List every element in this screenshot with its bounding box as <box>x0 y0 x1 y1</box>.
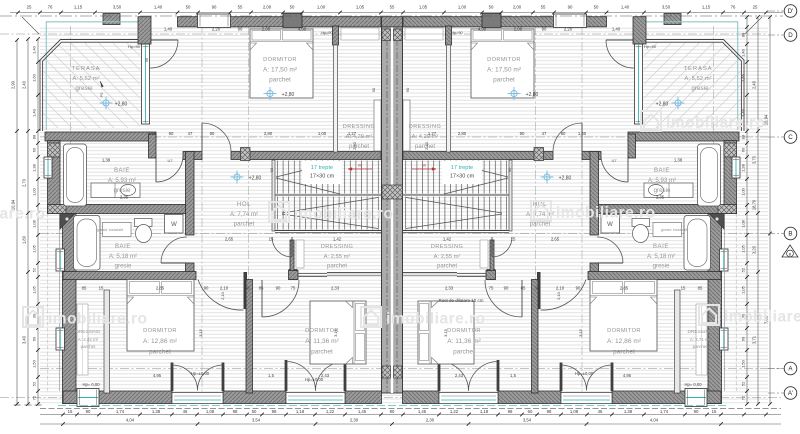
svg-text:C: C <box>788 134 793 141</box>
svg-text:BAIE: BAIE <box>653 244 669 250</box>
svg-text:75: 75 <box>291 286 296 291</box>
svg-text:Hp= 0,00: Hp= 0,00 <box>82 382 100 387</box>
svg-text:D: D <box>788 32 793 39</box>
svg-text:1,00: 1,00 <box>32 187 37 196</box>
svg-text:A: 5,52 m²: A: 5,52 m² <box>684 76 711 82</box>
svg-text:2,33: 2,33 <box>445 286 454 291</box>
svg-text:2,33: 2,33 <box>331 286 340 291</box>
svg-text:60: 60 <box>741 147 746 152</box>
svg-text:2,20: 2,20 <box>212 27 221 32</box>
svg-text:imobiliare.ro: imobiliare.ro <box>48 311 148 328</box>
svg-text:1,05: 1,05 <box>741 285 746 294</box>
svg-text:3,40: 3,40 <box>22 335 27 344</box>
svg-text:A: 17,50 m²: A: 17,50 m² <box>263 67 298 74</box>
svg-text:1,00: 1,00 <box>458 5 467 10</box>
svg-text:90: 90 <box>504 286 509 291</box>
svg-text:1,40: 1,40 <box>612 27 621 32</box>
svg-text:2,80: 2,80 <box>458 131 467 136</box>
svg-text:90: 90 <box>507 167 512 172</box>
svg-text:parchet: parchet <box>453 349 475 356</box>
svg-text:98: 98 <box>272 409 277 414</box>
svg-text:DRESSING: DRESSING <box>75 329 100 335</box>
svg-text:+2,80: +2,80 <box>115 102 128 108</box>
svg-text:2,30: 2,30 <box>350 418 359 423</box>
svg-text:U7: U7 <box>167 158 173 163</box>
svg-text:52: 52 <box>32 267 37 272</box>
svg-text:2,40: 2,40 <box>22 80 27 89</box>
svg-text:50: 50 <box>489 5 494 10</box>
svg-text:2,40: 2,40 <box>352 141 357 150</box>
svg-text:1,42: 1,42 <box>443 237 452 242</box>
svg-text:90: 90 <box>269 167 274 172</box>
svg-text:72: 72 <box>741 395 746 400</box>
svg-text:3,71: 3,71 <box>752 335 757 344</box>
svg-text:2,00: 2,00 <box>263 5 272 10</box>
svg-text:4,90: 4,90 <box>478 27 487 32</box>
svg-text:88: 88 <box>741 134 746 139</box>
svg-text:1,40: 1,40 <box>578 131 587 136</box>
svg-text:B: B <box>788 231 792 238</box>
svg-text:4,04: 4,04 <box>126 418 135 423</box>
svg-text:3,15: 3,15 <box>333 328 338 337</box>
svg-text:Hp=90: Hp=90 <box>321 31 332 35</box>
svg-text:90: 90 <box>405 87 410 92</box>
svg-text:15: 15 <box>269 237 274 242</box>
svg-text:1,18: 1,18 <box>296 409 305 414</box>
svg-text:3,54: 3,54 <box>252 418 261 423</box>
svg-text:30: 30 <box>245 286 250 291</box>
svg-text:3,15: 3,15 <box>578 328 583 337</box>
svg-text:3,15: 3,15 <box>198 328 203 337</box>
svg-text:1,27: 1,27 <box>428 131 437 136</box>
svg-text:Hp=±0,00: Hp=±0,00 <box>191 371 210 376</box>
svg-text:1,5: 1,5 <box>268 373 275 378</box>
svg-text:A: 5,93 m²: A: 5,93 m² <box>108 177 136 184</box>
svg-text:4,95: 4,95 <box>623 373 632 378</box>
svg-text:imobiliare.ro: imobiliare.ro <box>666 115 766 132</box>
svg-text:DORMITOR: DORMITOR <box>607 328 641 334</box>
svg-text:gresie: gresie <box>75 85 93 92</box>
svg-text:parchet: parchet <box>693 344 708 349</box>
svg-text:90: 90 <box>276 286 281 291</box>
svg-text:DRESSING: DRESSING <box>687 329 712 335</box>
svg-text:90: 90 <box>576 286 581 291</box>
svg-text:90: 90 <box>86 409 91 414</box>
svg-text:parchet: parchet <box>81 344 96 349</box>
svg-text:gresie: gresie <box>691 85 709 92</box>
svg-text:+2,80: +2,80 <box>282 92 295 98</box>
svg-text:parchet: parchet <box>269 77 291 84</box>
svg-text:2,35: 2,35 <box>656 195 665 200</box>
svg-text:15: 15 <box>712 409 717 414</box>
svg-text:52: 52 <box>741 267 746 272</box>
svg-text:Hp=90: Hp=90 <box>644 44 657 49</box>
svg-text:1,22: 1,22 <box>450 409 459 414</box>
svg-text:imobiliare.ro: imobiliare.ro <box>386 311 486 328</box>
svg-text:1,05: 1,05 <box>32 285 37 294</box>
svg-text:2,85: 2,85 <box>620 286 629 291</box>
svg-text:parchet: parchet <box>613 349 635 356</box>
svg-text:imobiliare.ro: imobiliare.ro <box>294 206 394 223</box>
svg-text:1,38: 1,38 <box>102 158 111 163</box>
svg-text:1,42: 1,42 <box>333 237 342 242</box>
svg-text:A: 17,50 m²: A: 17,50 m² <box>487 67 522 74</box>
svg-text:A': A' <box>788 390 793 397</box>
svg-text:90: 90 <box>694 409 699 414</box>
svg-text:A: 2,71 m²: A: 2,71 m² <box>690 337 711 342</box>
svg-text:85: 85 <box>82 286 87 291</box>
svg-text:2,10: 2,10 <box>556 286 565 291</box>
svg-text:2,00: 2,00 <box>262 27 271 32</box>
svg-text:55: 55 <box>238 5 243 10</box>
svg-text:parchet: parchet <box>149 349 171 356</box>
svg-text:90: 90 <box>390 409 395 414</box>
svg-text:1,40: 1,40 <box>164 27 173 32</box>
svg-text:1,08: 1,08 <box>570 409 579 414</box>
svg-text:17×30 cm: 17×30 cm <box>310 174 335 180</box>
svg-text:1,60: 1,60 <box>32 73 37 82</box>
svg-text:A: 2,55 m²: A: 2,55 m² <box>324 254 351 260</box>
svg-text:25: 25 <box>753 5 758 10</box>
svg-text:2,70: 2,70 <box>22 178 27 187</box>
svg-text:1,38: 1,38 <box>741 163 746 172</box>
svg-text:A: 5,18 m²: A: 5,18 m² <box>109 253 137 260</box>
svg-text:55: 55 <box>541 5 546 10</box>
svg-text:76: 76 <box>731 5 736 10</box>
svg-text:P5: P5 <box>99 92 104 98</box>
svg-text:gresie: gresie <box>654 187 671 194</box>
svg-text:52: 52 <box>32 381 37 386</box>
svg-text:4,04: 4,04 <box>650 418 659 423</box>
svg-text:90: 90 <box>210 131 215 136</box>
svg-text:1,00: 1,00 <box>317 5 326 10</box>
svg-text:TERASA: TERASA <box>72 66 101 72</box>
svg-text:15: 15 <box>99 286 104 291</box>
svg-text:2,35: 2,35 <box>120 195 129 200</box>
svg-text:DRESSING: DRESSING <box>343 124 375 130</box>
svg-text:1,40: 1,40 <box>621 5 630 10</box>
svg-text:55: 55 <box>390 5 395 10</box>
svg-text:72: 72 <box>32 395 37 400</box>
svg-text:1,40: 1,40 <box>32 45 37 54</box>
svg-text:76: 76 <box>48 5 53 10</box>
svg-text:3,70: 3,70 <box>752 155 757 164</box>
svg-text:50: 50 <box>186 5 191 10</box>
svg-text:98: 98 <box>547 409 552 414</box>
svg-text:A: 5,93 m²: A: 5,93 m² <box>648 177 676 184</box>
svg-text:18,76: 18,76 <box>752 199 757 210</box>
svg-text:parchet: parchet <box>311 349 333 356</box>
svg-text:15: 15 <box>68 409 73 414</box>
svg-text:25: 25 <box>27 5 32 10</box>
svg-text:1,5: 1,5 <box>510 373 517 378</box>
svg-text:60: 60 <box>252 409 257 414</box>
svg-text:90: 90 <box>568 5 573 10</box>
svg-text:BAIE: BAIE <box>114 168 130 174</box>
svg-text:2,40: 2,40 <box>752 80 757 89</box>
svg-text:90: 90 <box>145 58 149 62</box>
svg-text:2,85: 2,85 <box>156 286 165 291</box>
svg-text:90: 90 <box>238 27 243 32</box>
svg-text:17×30 cm: 17×30 cm <box>450 174 475 180</box>
svg-text:88: 88 <box>32 134 37 139</box>
svg-text:1,15: 1,15 <box>74 5 83 10</box>
svg-text:1,15: 1,15 <box>702 5 711 10</box>
svg-text:DRESSING: DRESSING <box>431 244 463 250</box>
svg-text:90: 90 <box>169 131 174 136</box>
svg-text:1,08: 1,08 <box>741 219 746 228</box>
svg-text:HOL: HOL <box>237 202 251 208</box>
svg-text:2,20: 2,20 <box>564 27 573 32</box>
svg-text:1,38: 1,38 <box>32 163 37 172</box>
svg-text:1,05: 1,05 <box>419 5 428 10</box>
svg-text:+2,80: +2,80 <box>656 102 669 108</box>
svg-text:1,18: 1,18 <box>480 409 489 414</box>
svg-text:3,15: 3,15 <box>443 328 448 337</box>
svg-text:gresie: gresie <box>114 187 131 194</box>
svg-text:2,80: 2,80 <box>264 131 273 136</box>
svg-text:DORMITOR: DORMITOR <box>487 57 521 63</box>
svg-text:46: 46 <box>598 409 603 414</box>
svg-text:DORMITOR: DORMITOR <box>263 57 297 63</box>
svg-text:Rost de dilatare 10 cm: Rost de dilatare 10 cm <box>438 298 483 303</box>
svg-text:2,10: 2,10 <box>220 291 225 300</box>
svg-text:BAIE: BAIE <box>115 244 131 250</box>
svg-text:imobiliare.ro: imobiliare.ro <box>0 206 46 223</box>
svg-text:85: 85 <box>698 286 703 291</box>
svg-text:W: W <box>171 222 177 228</box>
svg-text:85: 85 <box>259 286 264 291</box>
svg-text:2,65: 2,65 <box>225 237 234 242</box>
svg-text:90: 90 <box>542 27 547 32</box>
svg-text:1,45: 1,45 <box>418 409 427 414</box>
svg-text:3,20: 3,20 <box>752 245 757 254</box>
svg-text:2,30: 2,30 <box>426 418 435 423</box>
svg-text:imobiliare.ro: imobiliare.ro <box>724 309 800 326</box>
svg-text:3,50: 3,50 <box>662 5 671 10</box>
svg-text:gresie: gresie <box>115 263 132 270</box>
svg-text:80: 80 <box>741 32 746 37</box>
svg-text:4,90: 4,90 <box>298 27 307 32</box>
svg-text:A: 12,86 m²: A: 12,86 m² <box>143 338 178 345</box>
svg-text:gresie instalatii: gresie instalatii <box>97 227 124 232</box>
svg-text:46: 46 <box>183 409 188 414</box>
svg-text:1,00: 1,00 <box>741 187 746 196</box>
svg-text:DORMITOR: DORMITOR <box>447 328 481 334</box>
svg-text:15: 15 <box>511 237 516 242</box>
svg-text:A: 2,32 m²: A: 2,32 m² <box>78 337 99 342</box>
svg-text:parchet: parchet <box>234 221 255 228</box>
svg-text:1,05: 1,05 <box>741 244 746 253</box>
svg-text:2,65: 2,65 <box>551 237 560 242</box>
svg-text:DRESSING: DRESSING <box>321 244 353 250</box>
svg-text:2,40: 2,40 <box>424 141 429 150</box>
svg-text:+2,80: +2,80 <box>559 176 572 182</box>
svg-text:90: 90 <box>358 164 362 168</box>
svg-text:Hp=90: Hp=90 <box>451 31 462 35</box>
svg-text:DORMITOR: DORMITOR <box>143 328 177 334</box>
svg-text:1,80: 1,80 <box>22 235 27 244</box>
svg-text:1,50: 1,50 <box>741 359 746 368</box>
svg-text:60: 60 <box>32 147 37 152</box>
svg-text:U7: U7 <box>611 158 617 163</box>
svg-text:1,40: 1,40 <box>32 108 37 117</box>
svg-text:1,00: 1,00 <box>318 131 327 136</box>
svg-text:1,38: 1,38 <box>674 158 683 163</box>
svg-text:A: 2,55 m²: A: 2,55 m² <box>434 254 461 260</box>
svg-text:47: 47 <box>188 131 193 136</box>
svg-text:2,43: 2,43 <box>321 373 330 378</box>
svg-text:parchet: parchet <box>493 77 515 84</box>
svg-text:1,40: 1,40 <box>148 131 157 136</box>
svg-text:B: B <box>789 252 792 257</box>
svg-text:90: 90 <box>204 286 209 291</box>
svg-text:1,22: 1,22 <box>326 409 335 414</box>
svg-text:TERASA: TERASA <box>684 66 713 72</box>
svg-text:A: 11,36 m²: A: 11,36 m² <box>447 338 481 345</box>
svg-text:imobiliare.ro: imobiliare.ro <box>556 205 656 222</box>
svg-text:50: 50 <box>290 5 295 10</box>
svg-text:3,54: 3,54 <box>523 418 532 423</box>
svg-text:4,95: 4,95 <box>153 373 162 378</box>
svg-text:1,38: 1,38 <box>152 409 161 414</box>
svg-text:98: 98 <box>233 409 238 414</box>
svg-text:A: 12,86 m²: A: 12,86 m² <box>607 338 642 345</box>
svg-text:1,40: 1,40 <box>154 5 163 10</box>
svg-text:Hp= 0,00: Hp= 0,00 <box>684 382 702 387</box>
svg-text:17 trepte: 17 trepte <box>311 165 333 171</box>
svg-text:2,10: 2,10 <box>220 286 229 291</box>
svg-text:1,08: 1,08 <box>206 409 215 414</box>
svg-text:BAIE: BAIE <box>654 168 670 174</box>
svg-text:90: 90 <box>561 131 566 136</box>
svg-text:Hp=90: Hp=90 <box>128 44 141 49</box>
svg-text:A: 5,52 m²: A: 5,52 m² <box>72 76 99 82</box>
svg-text:60: 60 <box>741 336 746 341</box>
svg-text:parchet: parchet <box>327 264 347 270</box>
svg-text:gresie: gresie <box>653 263 670 270</box>
svg-text:DRESSING: DRESSING <box>409 124 441 130</box>
svg-text:1,60: 1,60 <box>741 73 746 82</box>
svg-text:1,45: 1,45 <box>358 409 367 414</box>
svg-text:2,90: 2,90 <box>11 80 16 89</box>
svg-text:A: 7,74 m²: A: 7,74 m² <box>230 211 258 218</box>
svg-text:3,50: 3,50 <box>113 5 122 10</box>
svg-text:60: 60 <box>32 336 37 341</box>
svg-text:1,27: 1,27 <box>348 131 357 136</box>
svg-text:30: 30 <box>535 286 540 291</box>
svg-text:A: 11,36 m²: A: 11,36 m² <box>305 338 339 345</box>
svg-text:47: 47 <box>542 131 547 136</box>
svg-text:parchet: parchet <box>437 264 457 270</box>
svg-text:85: 85 <box>521 286 526 291</box>
svg-text:1,40: 1,40 <box>741 48 746 57</box>
svg-text:1,74: 1,74 <box>660 409 669 414</box>
svg-text:60: 60 <box>528 409 533 414</box>
svg-text:Hp=±0,00: Hp=±0,00 <box>575 371 594 376</box>
svg-text:1,50: 1,50 <box>32 359 37 368</box>
svg-text:W: W <box>607 222 613 228</box>
svg-text:15: 15 <box>681 286 686 291</box>
svg-text:75: 75 <box>489 286 494 291</box>
svg-text:2,10: 2,10 <box>556 291 561 300</box>
svg-text:2,00: 2,00 <box>513 5 522 10</box>
svg-text:+2,80: +2,80 <box>526 92 539 98</box>
svg-text:gresie instalatii: gresie instalatii <box>661 227 688 232</box>
svg-text:17 trepte: 17 trepte <box>451 165 473 171</box>
svg-text:2,43: 2,43 <box>455 373 464 378</box>
svg-text:D': D' <box>788 8 794 15</box>
svg-text:98: 98 <box>508 409 513 414</box>
svg-text:52: 52 <box>741 381 746 386</box>
svg-text:1,05: 1,05 <box>32 244 37 253</box>
svg-text:50: 50 <box>594 5 599 10</box>
svg-text:1,74: 1,74 <box>116 409 125 414</box>
svg-text:+2,80: +2,80 <box>249 176 262 182</box>
svg-text:90: 90 <box>371 87 376 92</box>
svg-text:90: 90 <box>212 5 217 10</box>
svg-text:1,05: 1,05 <box>356 5 365 10</box>
svg-text:A: 5,18 m²: A: 5,18 m² <box>647 253 675 260</box>
svg-text:90: 90 <box>520 131 525 136</box>
svg-text:2,00: 2,00 <box>514 27 523 32</box>
svg-text:1,38: 1,38 <box>624 409 633 414</box>
